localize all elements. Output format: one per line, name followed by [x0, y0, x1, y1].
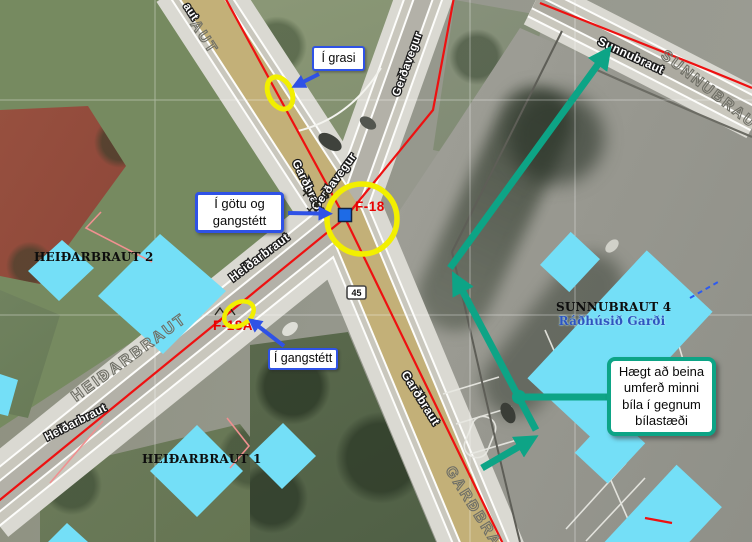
callout-parking-note: Hægt að beina umferð minni bíla í gegnum…	[607, 357, 716, 436]
arrow-to-sidewalk	[258, 326, 284, 346]
building-bottom-right	[598, 465, 722, 542]
parcel-label-sunnubraut4-title: SUNNUBRAUT 4	[556, 300, 668, 314]
route-45-sign: 45	[347, 286, 366, 299]
point-label-f18: F-18	[355, 199, 385, 214]
map-overlay-svg: aut AUT Gerðavegur Sunnubraut SUNNUBRAUT…	[0, 0, 752, 542]
flow-connector-dot	[512, 390, 526, 404]
building-heidarbraut1-main	[150, 425, 243, 517]
callout-in-grass: Í grasi	[312, 46, 365, 71]
f18-square-marker	[339, 209, 352, 222]
building-bottom-small	[48, 523, 88, 542]
parcel-label-heidarbraut2: HEIÐARBRAUT 2	[34, 250, 154, 264]
parcel-label-sunnubraut4: SUNNUBRAUT 4 Ráðhúsið Garði	[556, 300, 668, 328]
blue-dashed-mark	[690, 282, 718, 298]
arrow-to-intersection	[288, 213, 320, 214]
callout-in-street-and-sidewalk: Í götu og gangstétt	[195, 192, 284, 233]
parcel-label-radhusid: Ráðhúsið Garði	[556, 314, 668, 328]
building-left-edge	[0, 374, 18, 416]
flow-arrow-diagonal	[462, 290, 536, 430]
route-45-number: 45	[351, 288, 361, 298]
callout-in-sidewalk: Í gangstétt	[268, 348, 338, 370]
parcel-label-heidarbraut1: HEIÐARBRAUT 1	[142, 452, 262, 466]
flow-arrow-long	[450, 63, 599, 268]
arrow-to-grass	[303, 74, 319, 82]
aerial-map-canvas: aut AUT Gerðavegur Sunnubraut SUNNUBRAUT…	[0, 0, 752, 542]
